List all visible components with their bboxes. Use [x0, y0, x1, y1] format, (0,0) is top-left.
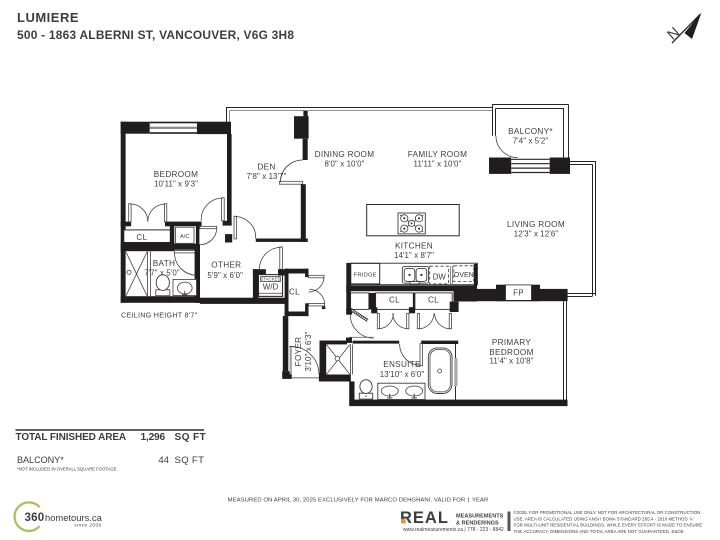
svg-text:REAL: REAL	[400, 509, 449, 527]
svg-text:3'10" x 6'3": 3'10" x 6'3"	[304, 331, 313, 371]
svg-text:BALCONY*: BALCONY*	[17, 455, 64, 465]
svg-text:since 2006: since 2006	[74, 523, 101, 528]
svg-text:FRIDGE: FRIDGE	[354, 272, 377, 278]
svg-text:CL: CL	[289, 288, 300, 297]
svg-text:7'7" x 5'0": 7'7" x 5'0"	[144, 268, 180, 277]
svg-text:BEDROOM: BEDROOM	[154, 170, 198, 179]
svg-text:ENSUITE: ENSUITE	[383, 360, 421, 369]
svg-text:& RENDERINGS: & RENDERINGS	[456, 521, 499, 527]
svg-text:W/D: W/D	[263, 283, 279, 292]
svg-text:1,296: 1,296	[141, 432, 166, 443]
svg-text:BATH: BATH	[153, 259, 175, 268]
svg-text:11'4" x 10'8": 11'4" x 10'8"	[490, 356, 534, 365]
svg-text:MEASUREMENTS: MEASUREMENTS	[456, 514, 504, 520]
svg-text:DINING ROOM: DINING ROOM	[315, 150, 375, 159]
svg-text:THE ACCURACY, DIMENSIONS AND T: THE ACCURACY, DIMENSIONS AND TOTAL AREA …	[514, 529, 684, 534]
svg-text:360: 360	[25, 512, 45, 524]
svg-text:CEILING HEIGHT 8'7": CEILING HEIGHT 8'7"	[121, 310, 198, 319]
svg-text:OVEN: OVEN	[454, 272, 474, 279]
svg-text:DW: DW	[433, 272, 447, 281]
svg-text:SQ FT: SQ FT	[175, 455, 205, 466]
svg-text:8'0" x 10'0": 8'0" x 10'0"	[324, 160, 364, 169]
svg-text:5'9" x 6'0": 5'9" x 6'0"	[207, 271, 243, 280]
svg-text:PRIMARY: PRIMARY	[492, 338, 531, 347]
svg-text:*NOT INCLUDED IN OVERALL SQUAR: *NOT INCLUDED IN OVERALL SQUARE FOOTAGE	[17, 467, 117, 472]
svg-text:CL: CL	[389, 295, 400, 304]
svg-text:hometours.ca: hometours.ca	[45, 512, 103, 523]
svg-text:500 - 1863 ALBERNI ST, VANCOUV: 500 - 1863 ALBERNI ST, VANCOUVER, V6G 3H…	[17, 28, 294, 42]
svg-text:A/C: A/C	[180, 234, 189, 240]
svg-text:KITCHEN: KITCHEN	[395, 242, 433, 251]
svg-text:LUMIERE: LUMIERE	[17, 10, 79, 25]
svg-text:©2025. FOR PROMOTIONAL USE ONL: ©2025. FOR PROMOTIONAL USE ONLY. NOT FOR…	[514, 509, 701, 515]
svg-text:FP: FP	[513, 289, 524, 298]
svg-text:STACKED: STACKED	[260, 277, 280, 282]
svg-text:SQ FT: SQ FT	[175, 432, 207, 443]
svg-text:www.realmeasurements.ca | 778: www.realmeasurements.ca | 778 - 223 - 88…	[403, 527, 504, 533]
svg-text:USE. AREA IS CALCULATED USING: USE. AREA IS CALCULATED USING ANSI I BOM…	[514, 516, 694, 521]
svg-text:13'10" x 6'0": 13'10" x 6'0"	[380, 370, 425, 379]
svg-text:LIVING ROOM: LIVING ROOM	[507, 220, 565, 229]
svg-text:BALCONY*: BALCONY*	[508, 127, 553, 136]
svg-text:12'3" x 12'6": 12'3" x 12'6"	[514, 229, 559, 238]
svg-text:FOYER: FOYER	[294, 337, 303, 367]
svg-text:7'4" x 5'2": 7'4" x 5'2"	[513, 136, 549, 145]
svg-text:MEASURED ON APRIL 30, 2025 EXC: MEASURED ON APRIL 30, 2025 EXCLUSIVELY F…	[228, 498, 489, 504]
svg-text:14'1" x 8'7": 14'1" x 8'7"	[394, 251, 434, 260]
svg-text:10'11" x 9'3": 10'11" x 9'3"	[154, 180, 198, 189]
svg-text:CL: CL	[428, 295, 439, 304]
svg-text:TOTAL FINISHED AREA: TOTAL FINISHED AREA	[16, 432, 127, 443]
svg-text:FAMILY ROOM: FAMILY ROOM	[408, 150, 467, 159]
svg-text:CL: CL	[136, 233, 147, 242]
svg-text:OTHER: OTHER	[211, 261, 241, 270]
svg-text:FOR MULTI-UNIT RESIDENTIAL BUI: FOR MULTI-UNIT RESIDENTIAL BUILDINGS. WH…	[514, 523, 703, 528]
svg-text:11'11" x 10'0": 11'11" x 10'0"	[414, 160, 462, 169]
svg-text:DEN: DEN	[257, 163, 275, 172]
svg-text:44: 44	[158, 455, 169, 466]
